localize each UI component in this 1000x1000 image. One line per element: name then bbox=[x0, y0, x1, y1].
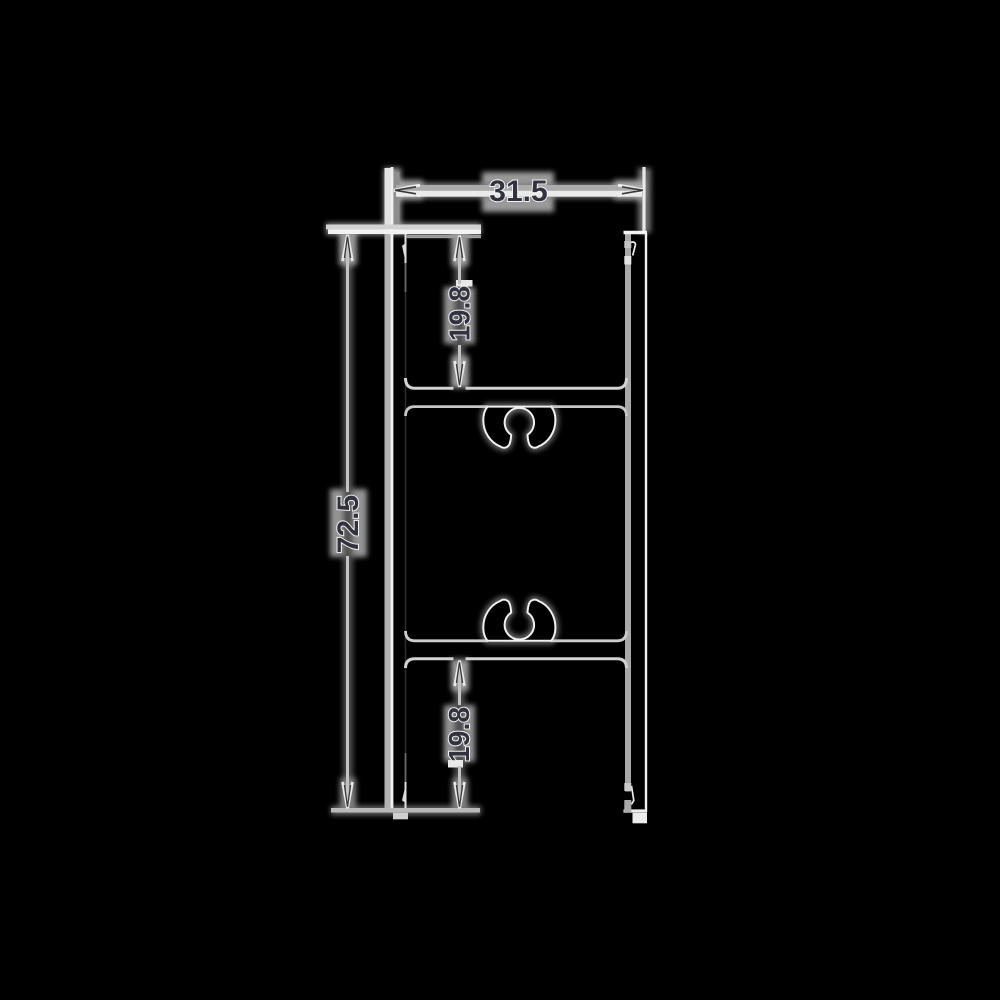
svg-text:72.5: 72.5 bbox=[332, 495, 365, 553]
svg-text:19.8: 19.8 bbox=[445, 286, 477, 341]
svg-text:19.8: 19.8 bbox=[444, 707, 476, 762]
svg-text:31.5: 31.5 bbox=[489, 175, 547, 208]
